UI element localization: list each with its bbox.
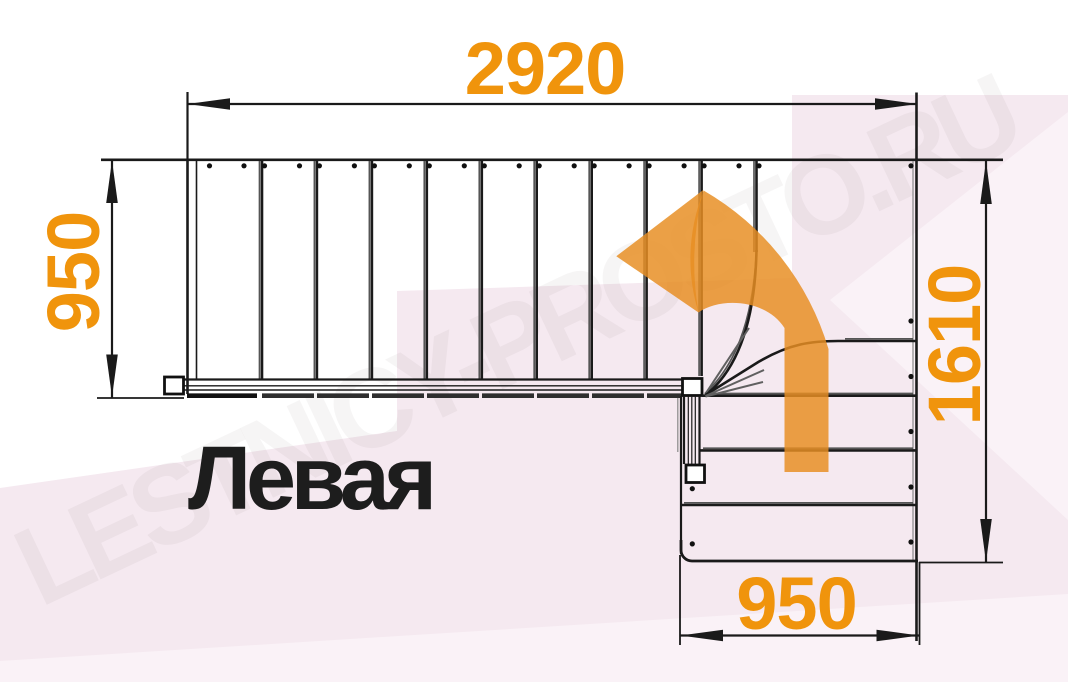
svg-text:2920: 2920 bbox=[465, 27, 626, 110]
svg-text:Левая: Левая bbox=[188, 429, 432, 529]
svg-text:1610: 1610 bbox=[913, 265, 996, 426]
svg-text:950: 950 bbox=[32, 212, 115, 332]
svg-text:950: 950 bbox=[736, 562, 856, 645]
